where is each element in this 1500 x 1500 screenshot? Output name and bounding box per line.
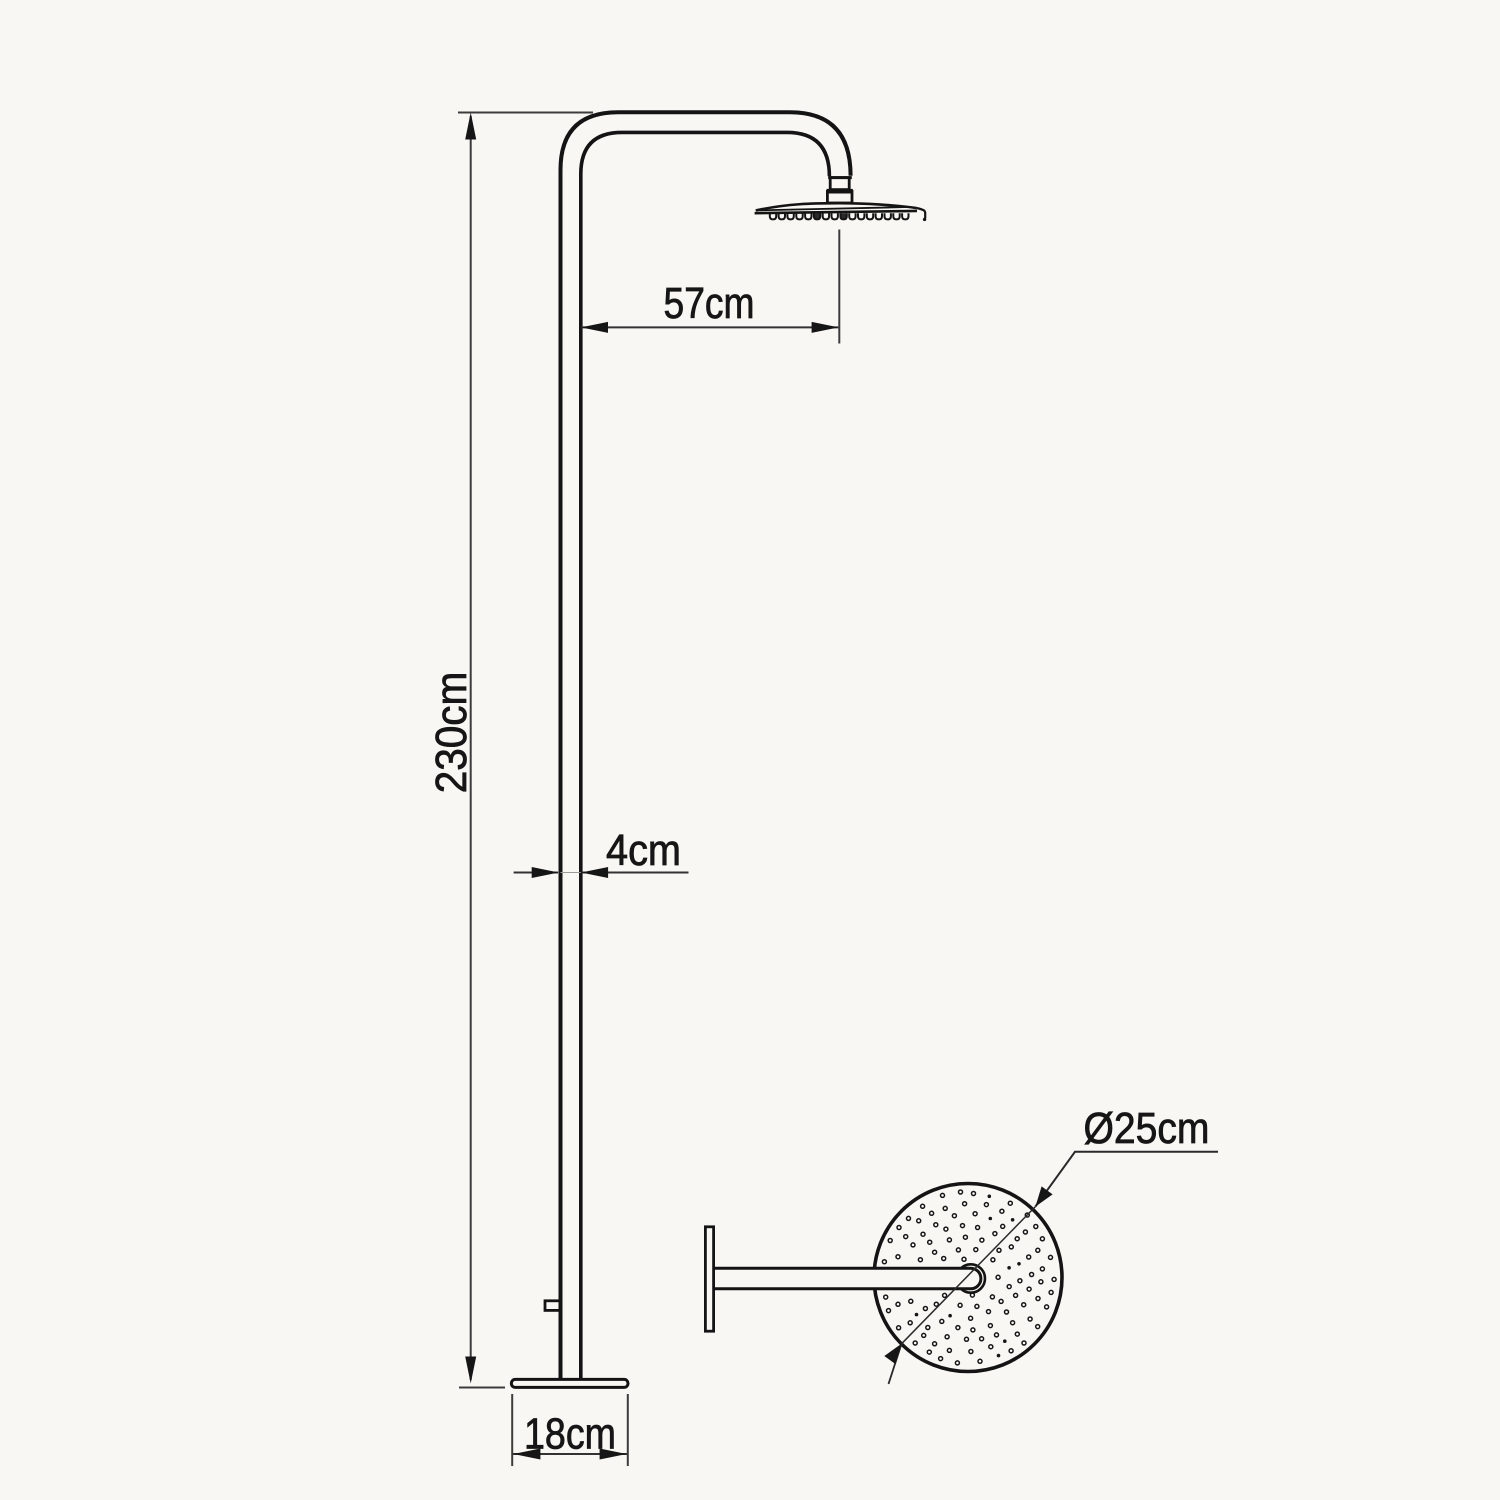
- svg-text:230cm: 230cm: [427, 672, 476, 794]
- svg-text:57cm: 57cm: [664, 279, 755, 328]
- svg-text:Ø25cm: Ø25cm: [1084, 1104, 1210, 1153]
- svg-text:18cm: 18cm: [524, 1409, 616, 1458]
- svg-text:4cm: 4cm: [606, 826, 681, 875]
